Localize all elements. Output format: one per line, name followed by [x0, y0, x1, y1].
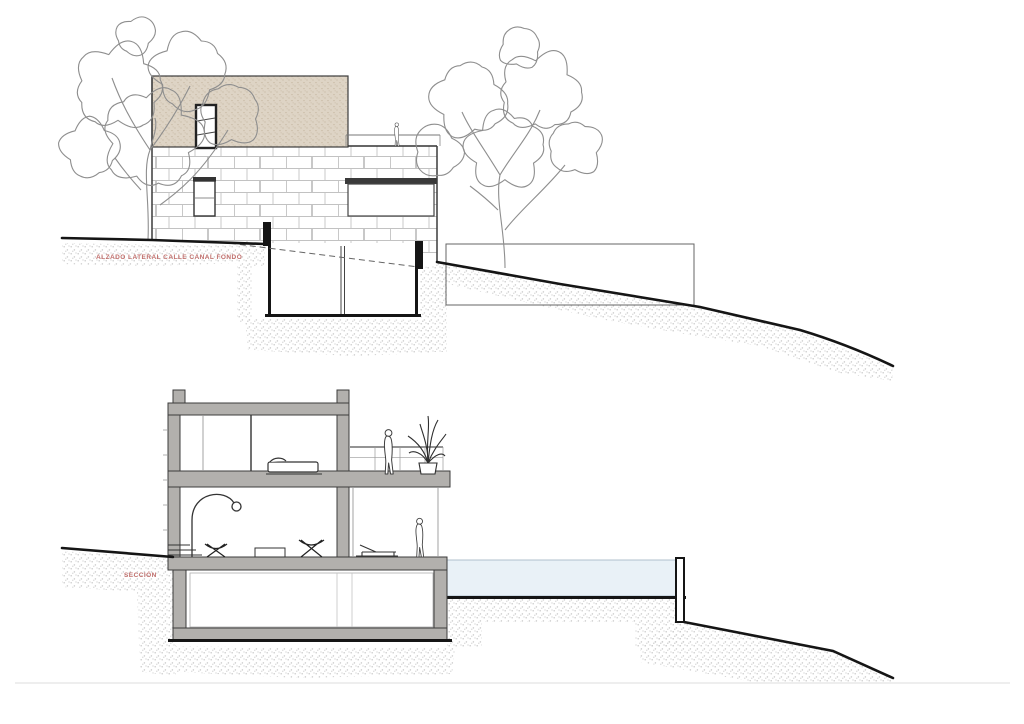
elevation-label: ALZADO LATERAL CALLE CANAL FONDO: [96, 254, 242, 261]
roof-terrace: [350, 416, 446, 474]
plans-canvas: ALZADO LATERAL CALLE CANAL FONDO: [0, 0, 1024, 724]
chaise-lounge: [356, 545, 398, 556]
pool-water: [447, 560, 680, 596]
lounge-chair-1: [205, 544, 227, 557]
right-parapet: [337, 390, 349, 403]
section-drawing: SECCIÓN: [62, 390, 893, 683]
bed: [266, 458, 322, 474]
roof-slab: [168, 403, 349, 415]
tree-sketch-right: [416, 27, 603, 268]
drawing-sheet: ALZADO LATERAL CALLE CANAL FONDO: [0, 0, 1024, 724]
floor-slab-upper: [168, 471, 450, 487]
basement-interior: [190, 573, 433, 627]
glass-walls: [353, 487, 438, 557]
ribbon-window: [345, 178, 437, 216]
section-label: SECCIÓN: [124, 570, 157, 579]
pool-wall: [676, 558, 684, 622]
left-parapet: [173, 390, 185, 403]
lounge-chair-2: [299, 540, 324, 557]
basement-floor-slab: [173, 628, 447, 640]
small-window: [193, 177, 216, 216]
low-table: [255, 548, 285, 557]
roof-person-figure: [395, 123, 400, 146]
interior-person-figure: [416, 518, 424, 557]
elevation-drawing: ALZADO LATERAL CALLE CANAL FONDO: [59, 17, 893, 381]
upper-window: [196, 105, 216, 148]
floor-slab-lower: [168, 557, 447, 570]
wall-hatch-ticks: [163, 430, 168, 530]
structure: [168, 390, 450, 640]
terrace-person-figure: [384, 430, 393, 474]
roof-railing: [346, 135, 440, 146]
top-floor-interior: [203, 415, 322, 474]
potted-plant: [408, 416, 446, 474]
ground-texture-elevation: [62, 243, 893, 381]
middle-floor-interior: [168, 487, 438, 557]
arc-lamp: [192, 494, 241, 557]
